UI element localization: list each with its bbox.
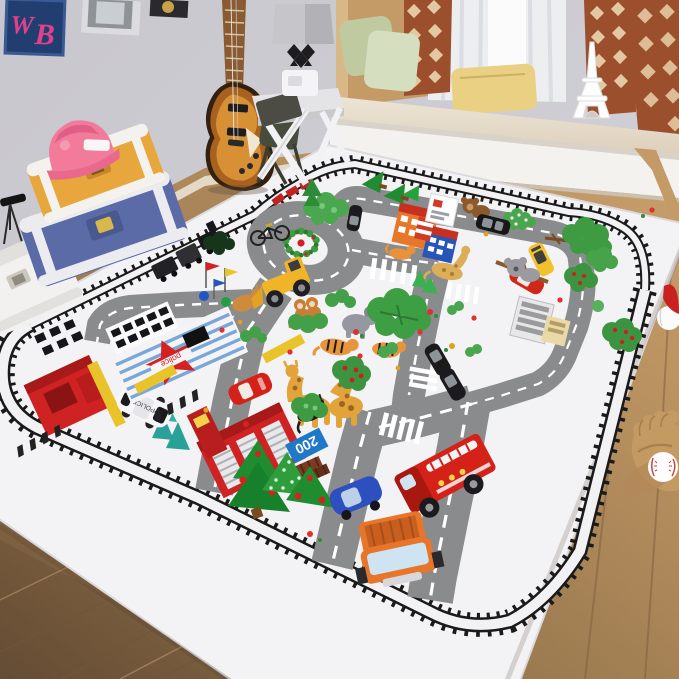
svg-text:B: B: [33, 18, 55, 52]
svg-text:W: W: [10, 10, 36, 40]
